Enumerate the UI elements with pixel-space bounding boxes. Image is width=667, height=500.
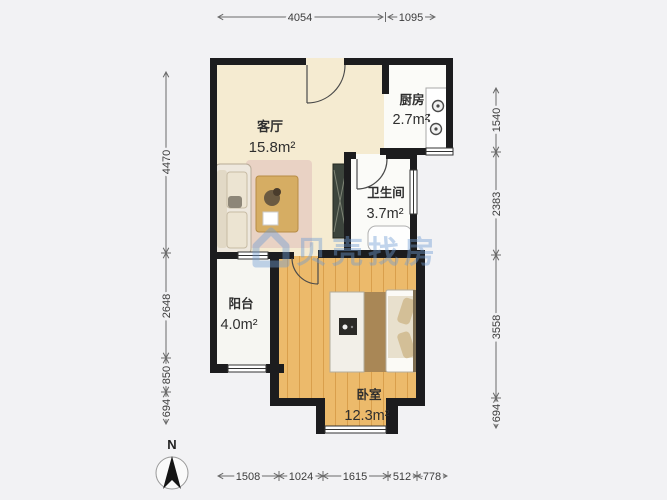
bathroom-area: 3.7m² xyxy=(366,206,403,222)
dim-right-2: 2383 xyxy=(491,192,503,216)
dim-top-2: 1095 xyxy=(399,12,423,24)
dim-bottom-2: 1024 xyxy=(289,471,313,483)
wall xyxy=(416,250,425,406)
dim-left-2: 2648 xyxy=(161,294,173,318)
living-room-name: 客厅 xyxy=(257,119,283,134)
wall xyxy=(344,58,453,65)
balcony-area: 4.0m² xyxy=(220,317,257,333)
bed xyxy=(386,290,417,372)
dim-right-3: 3558 xyxy=(491,315,503,339)
coffee-table xyxy=(256,176,298,232)
balcony-name: 阳台 xyxy=(228,296,253,311)
compass: N xyxy=(156,437,188,489)
balcony-floor xyxy=(214,256,276,370)
wall xyxy=(446,58,453,155)
kitchen-name: 厨房 xyxy=(399,92,424,107)
wardrobe xyxy=(330,292,364,372)
bathroom-name: 卫生间 xyxy=(367,185,405,200)
floor-plan-page: 贝壳找房 客厅 15.8m² 厨房 2.7m² 卫生间 3.7m² 阳台 4.0… xyxy=(0,0,667,500)
dim-right-1: 1540 xyxy=(491,108,503,132)
dim-bottom-4: 512 xyxy=(393,471,411,483)
dim-bottom-3: 1615 xyxy=(343,471,367,483)
dim-left-4: 694 xyxy=(161,399,173,417)
tv-icon xyxy=(339,318,357,335)
dim-bottom-5: 778 xyxy=(423,471,441,483)
bedroom-name: 卧室 xyxy=(356,387,382,402)
sofa xyxy=(215,164,251,254)
wall xyxy=(382,58,389,94)
wall xyxy=(210,58,306,65)
balcony-window xyxy=(228,365,266,372)
compass-north-label: N xyxy=(167,437,176,452)
dim-right-4: 694 xyxy=(491,404,503,422)
dim-top-1: 4054 xyxy=(288,12,312,24)
kitchen-area: 2.7m² xyxy=(392,112,429,128)
bathroom-window xyxy=(410,170,417,214)
dim-left-3: 850 xyxy=(161,366,173,384)
wall xyxy=(316,398,325,434)
watermark-text: 贝壳找房 xyxy=(296,235,440,270)
bedroom-furniture xyxy=(330,290,417,372)
living-room-area: 15.8m² xyxy=(249,139,296,156)
headboard xyxy=(413,290,416,372)
dim-left-1: 4470 xyxy=(161,150,173,174)
wall xyxy=(210,58,217,373)
wall xyxy=(270,252,279,406)
bedroom-area: 12.3m² xyxy=(344,408,389,424)
bay-window xyxy=(325,426,386,433)
kitchen-window xyxy=(426,148,453,155)
dim-bottom-1: 1508 xyxy=(236,471,260,483)
floor-plan-svg: 贝壳找房 客厅 15.8m² 厨房 2.7m² 卫生间 3.7m² 阳台 4.0… xyxy=(0,0,667,500)
hallway-floor xyxy=(340,58,388,158)
